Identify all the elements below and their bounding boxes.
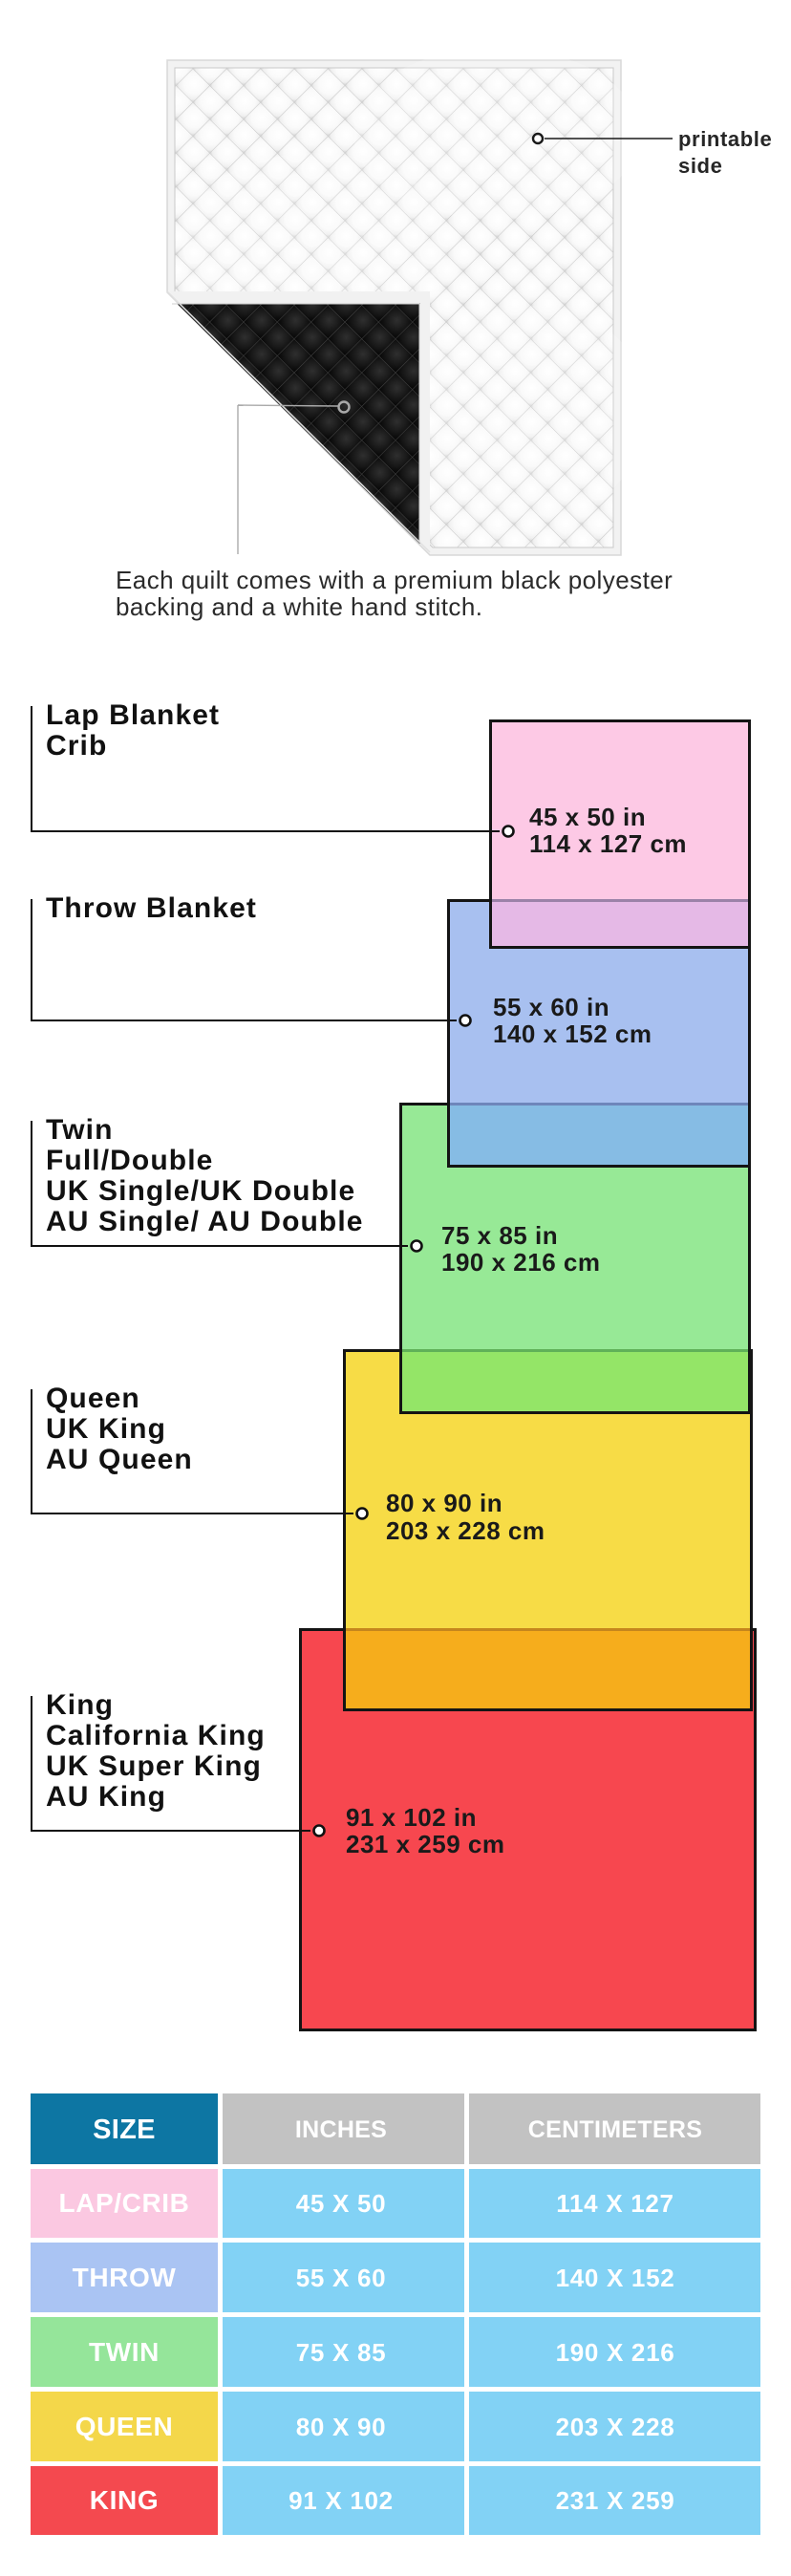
svg-text:75 x 85 in: 75 x 85 in — [441, 1221, 558, 1250]
svg-text:UK Super King: UK Super King — [46, 1750, 262, 1782]
svg-text:140 x 152 cm: 140 x 152 cm — [493, 1020, 652, 1048]
svg-text:AU Queen: AU Queen — [46, 1444, 193, 1475]
svg-text:91 x 102 in: 91 x 102 in — [346, 1803, 477, 1832]
svg-text:231 X 259: 231 X 259 — [556, 2486, 675, 2515]
svg-text:Throw Blanket: Throw Blanket — [46, 892, 257, 924]
svg-text:King: King — [46, 1689, 114, 1721]
svg-text:80 X 90: 80 X 90 — [296, 2413, 387, 2441]
svg-text:140 X 152: 140 X 152 — [556, 2264, 675, 2292]
svg-text:91 X 102: 91 X 102 — [289, 2486, 394, 2515]
svg-text:75 X 85: 75 X 85 — [296, 2338, 387, 2367]
svg-text:THROW: THROW — [73, 2263, 177, 2292]
svg-text:Lap Blanket: Lap Blanket — [46, 699, 220, 731]
svg-text:203 X 228: 203 X 228 — [556, 2413, 675, 2441]
svg-text:Crib: Crib — [46, 730, 107, 762]
svg-text:CENTIMETERS: CENTIMETERS — [528, 2116, 702, 2143]
svg-text:Twin: Twin — [46, 1114, 114, 1146]
svg-text:QUEEN: QUEEN — [75, 2412, 174, 2441]
svg-text:TWIN: TWIN — [89, 2337, 160, 2367]
svg-text:45 X 50: 45 X 50 — [296, 2189, 387, 2218]
svg-text:Each quilt comes with a premiu: Each quilt comes with a premium black po… — [116, 566, 673, 594]
svg-text:190 X 216: 190 X 216 — [556, 2338, 675, 2367]
svg-text:Full/Double: Full/Double — [46, 1145, 213, 1176]
svg-text:UK Single/UK Double: UK Single/UK Double — [46, 1175, 355, 1207]
svg-text:UK King: UK King — [46, 1413, 166, 1445]
svg-text:45 x 50 in: 45 x 50 in — [529, 803, 646, 831]
svg-text:AU King: AU King — [46, 1781, 166, 1813]
svg-text:printable: printable — [678, 127, 772, 151]
svg-text:80 x 90 in: 80 x 90 in — [386, 1489, 502, 1517]
svg-text:side: side — [678, 154, 722, 178]
svg-text:backing and a white hand stitc: backing and a white hand stitch. — [116, 592, 482, 621]
svg-text:203 x 228 cm: 203 x 228 cm — [386, 1516, 545, 1545]
svg-text:114 x 127 cm: 114 x 127 cm — [529, 829, 687, 858]
svg-text:55 x 60 in: 55 x 60 in — [493, 993, 609, 1021]
svg-text:SIZE: SIZE — [93, 2114, 156, 2145]
svg-text:INCHES: INCHES — [295, 2116, 387, 2143]
svg-text:KING: KING — [90, 2485, 159, 2515]
svg-text:55 X 60: 55 X 60 — [296, 2264, 387, 2292]
svg-text:LAP/CRIB: LAP/CRIB — [58, 2188, 189, 2218]
svg-text:231 x 259 cm: 231 x 259 cm — [346, 1830, 504, 1858]
svg-text:Queen: Queen — [46, 1383, 140, 1414]
svg-text:California King: California King — [46, 1720, 266, 1751]
svg-text:114 X 127: 114 X 127 — [556, 2189, 673, 2218]
svg-text:AU Single/ AU Double: AU Single/ AU Double — [46, 1206, 364, 1237]
svg-text:190 x 216 cm: 190 x 216 cm — [441, 1248, 600, 1277]
